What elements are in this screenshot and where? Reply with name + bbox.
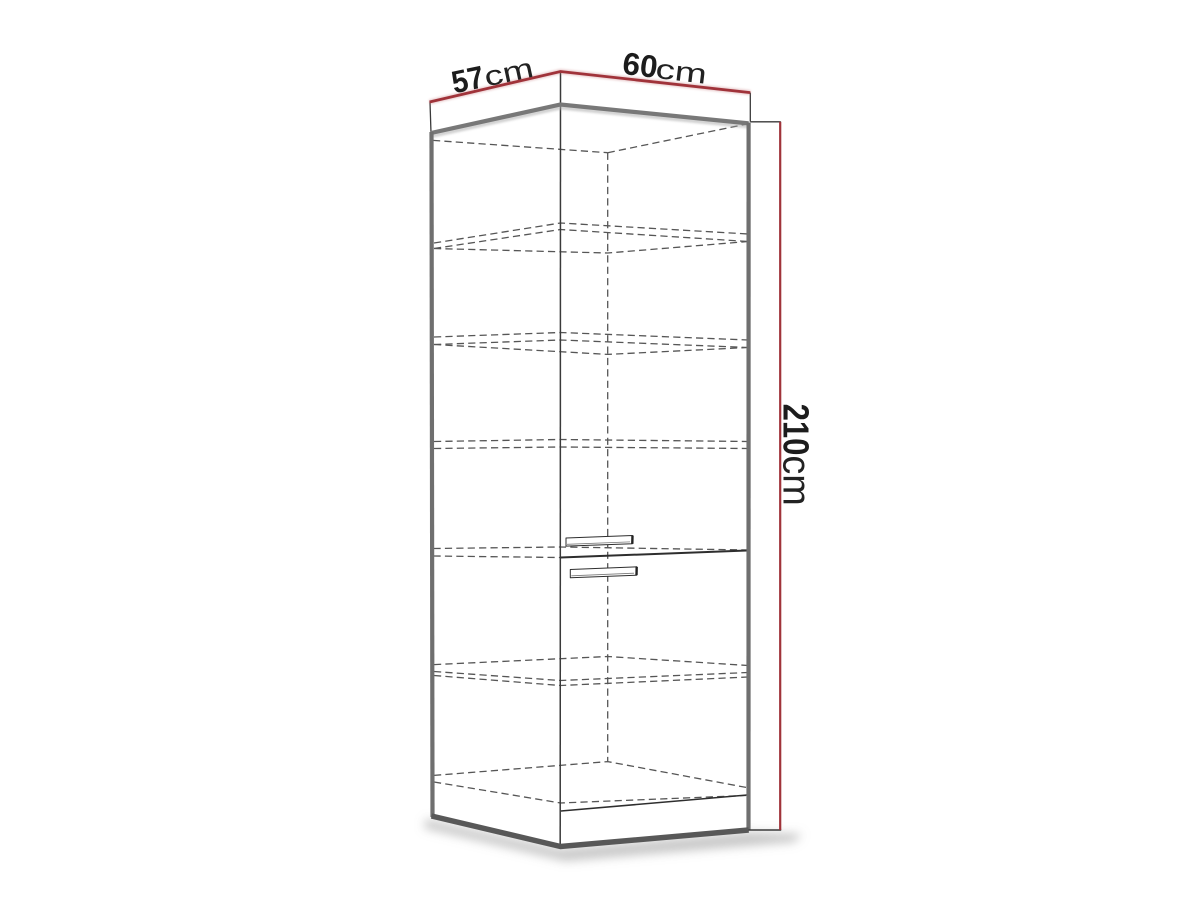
svg-text:cm: cm xyxy=(654,54,709,90)
svg-text:cm: cm xyxy=(774,455,817,505)
svg-text:210: 210 xyxy=(775,404,816,456)
